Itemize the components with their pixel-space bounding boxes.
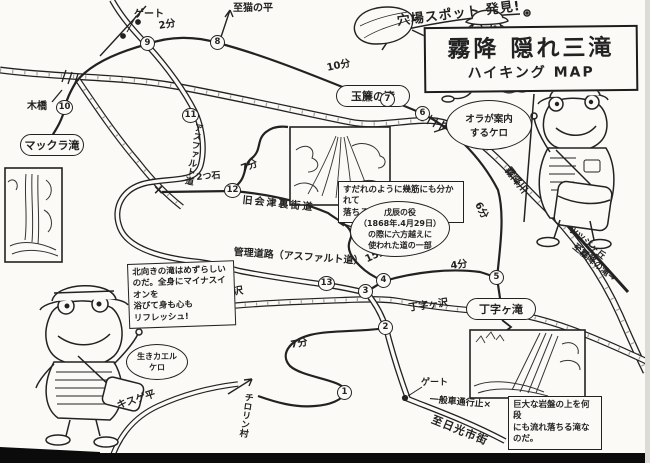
gate-top-label: ゲート: [134, 10, 164, 21]
guide-frog-speech-bubble: オラが案内 するケロ: [446, 100, 532, 150]
gate-bottom-label: ゲート: [421, 379, 448, 388]
station-marker-3: 3: [358, 284, 373, 299]
station-marker-13: 13: [318, 276, 335, 291]
station-marker-6: 6: [415, 106, 430, 121]
map-title: 霧降 隠れ三滝: [447, 37, 614, 62]
map-subtitle: ハイキング MAP: [467, 65, 594, 80]
station-marker-8: 8: [210, 35, 225, 50]
to-nekonodaira-label: 至猫の平: [233, 4, 273, 15]
guide-frog-illustration: [524, 85, 614, 249]
boshin-note-bubble: 戊辰の役 （1868年.4月29日） の際に六方越えに 使われた道の一部: [350, 201, 450, 257]
title-box: 霧降 隠れ三滝 ハイキング MAP: [424, 25, 639, 93]
choji-falls-label: 丁字ヶ滝: [466, 298, 536, 320]
ikikaeru-speech-bubble: 生きカエル ケロ: [126, 344, 188, 380]
station-marker-12: 12: [224, 183, 241, 198]
makkura-falls-illustration: [5, 168, 62, 262]
trail-closed-x-label: ×: [153, 184, 164, 198]
hiking-map: 穴場スポット 発見! 霧降 隠れ三滝 ハイキング MAP マックラ滝 玉簾の滝 …: [0, 0, 650, 463]
station-marker-1: 1: [337, 385, 352, 400]
tamasudare-falls-label: 玉簾の滝: [336, 85, 410, 107]
station-marker-2: 2: [378, 320, 393, 335]
makkura-falls-label: マックラ滝: [20, 134, 84, 156]
station-marker-4: 4: [376, 273, 391, 288]
wood-bridge-left-label: 木橋: [27, 102, 47, 113]
station-marker-7: 7: [380, 92, 395, 107]
makkura-sign-board: 北向きの滝はめずらしい のだ。全身にマイナスイオンを 浴びて身も心も リフレッシ…: [127, 260, 236, 329]
station-marker-10: 10: [56, 100, 73, 115]
station-marker-5: 5: [489, 270, 504, 285]
choji-falls-illustration: [470, 330, 585, 398]
station-marker-11: 11: [182, 108, 199, 123]
station-marker-9: 9: [140, 36, 155, 51]
choji-caption-box: 巨大な岩盤の上を何段 にも流れ落ちる滝なのだ。: [508, 396, 602, 450]
